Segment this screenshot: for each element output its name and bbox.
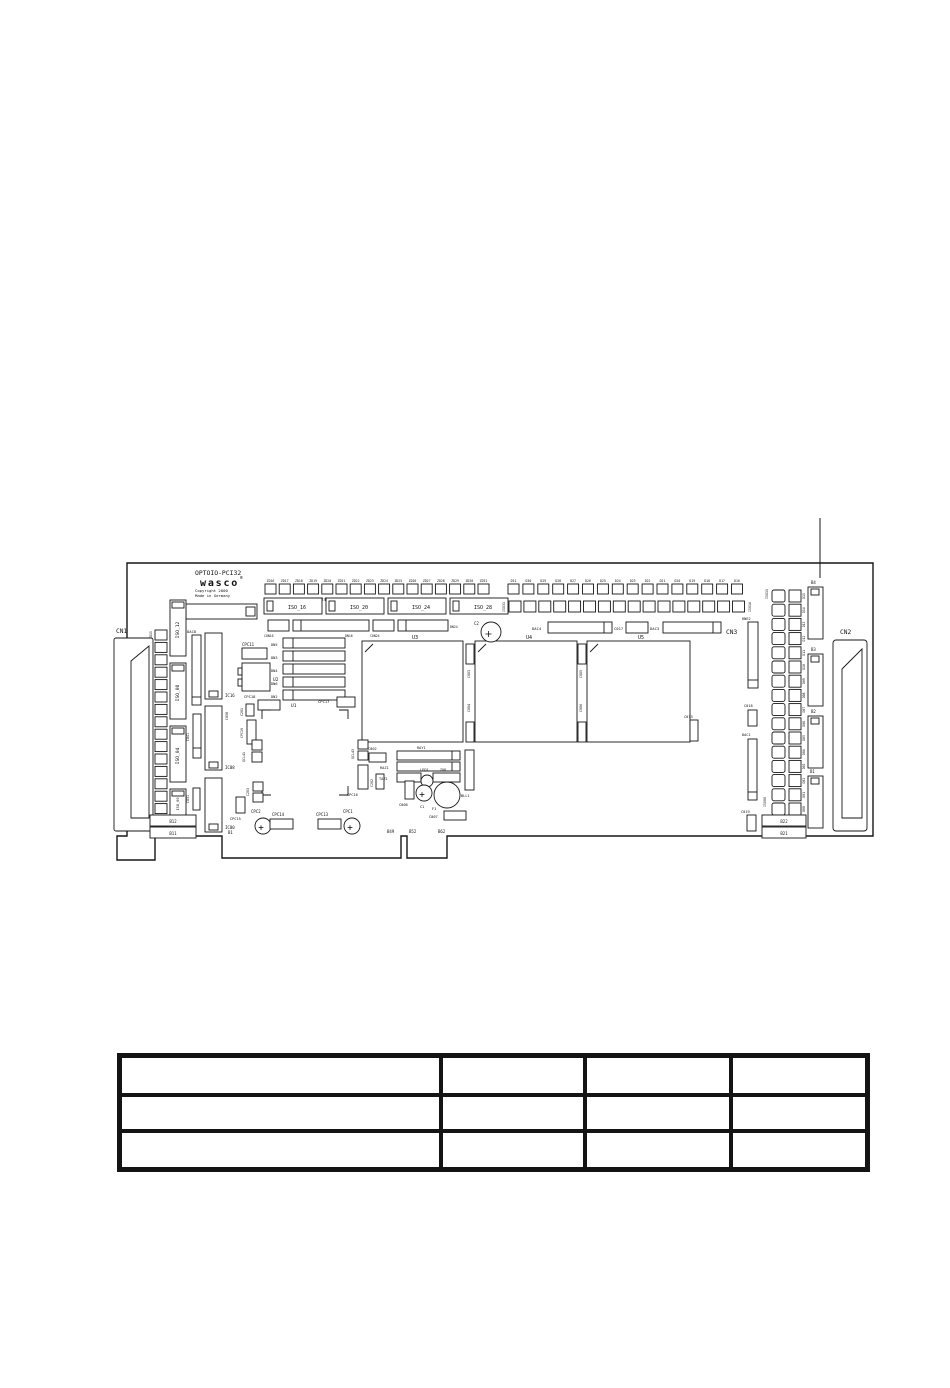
zd-top-row-label: ZD26 bbox=[409, 579, 417, 583]
c202-label: C202 bbox=[370, 779, 374, 787]
d-top-row-label: D30 bbox=[526, 579, 532, 583]
c002-body bbox=[369, 753, 386, 762]
d-right-column-label: D11 bbox=[802, 650, 806, 656]
ic08-label: IC08 bbox=[225, 765, 235, 770]
zd-left-column-item bbox=[155, 630, 167, 640]
led-right-column-item bbox=[772, 675, 785, 687]
d-right-column-label: D06 bbox=[802, 721, 806, 727]
c1-body bbox=[416, 785, 432, 801]
zd-top-row-label: ZD30 bbox=[465, 579, 473, 583]
dn24-label: DN24 bbox=[450, 625, 458, 629]
d-right-column-item bbox=[789, 775, 801, 787]
cpc11-body bbox=[242, 648, 267, 659]
d-right-column-label: D02 bbox=[802, 778, 806, 784]
qcl43-body1 bbox=[358, 740, 368, 749]
table-cell bbox=[585, 1095, 731, 1131]
d-right-column-label: D10 bbox=[802, 664, 806, 670]
dac8-label: DAC8 bbox=[187, 629, 197, 634]
table-row bbox=[120, 1095, 868, 1131]
d-right-column-item bbox=[789, 604, 801, 616]
cpc13-body bbox=[318, 819, 341, 829]
d-right-column-item bbox=[789, 633, 801, 645]
zd-top-row-label: ZD19 bbox=[309, 579, 317, 583]
d-top-row-label: D20 bbox=[675, 579, 681, 583]
zq8-label: ZQ8 bbox=[440, 768, 446, 772]
cpc19-label: CPC19 bbox=[240, 728, 244, 738]
zd-top-row-item bbox=[393, 584, 404, 594]
zd-left-column-item bbox=[155, 791, 167, 801]
c006-body bbox=[578, 722, 586, 742]
d-top-row-item bbox=[597, 584, 608, 594]
zd-left-column-item bbox=[155, 680, 167, 690]
c003-body bbox=[466, 644, 474, 664]
dn6-label: DN6 bbox=[271, 682, 278, 686]
cpc2-label: CPC2 bbox=[251, 809, 261, 814]
table-cell bbox=[441, 1131, 584, 1170]
led-right-column-item bbox=[772, 732, 785, 744]
d-top-row-label: D26 bbox=[585, 579, 591, 583]
zd-top-row-item bbox=[364, 584, 375, 594]
d-right-column-label: D08 bbox=[802, 692, 806, 698]
zd-top-row-item bbox=[407, 584, 418, 594]
dn3-body bbox=[283, 651, 345, 661]
table-cell bbox=[441, 1056, 584, 1095]
dn16-body bbox=[293, 620, 369, 631]
b2-notch bbox=[811, 718, 819, 724]
led-top-row-item bbox=[703, 601, 715, 612]
cpc1-body bbox=[344, 818, 360, 834]
qcl41-body1 bbox=[252, 740, 262, 750]
c203-label: C203 bbox=[246, 788, 250, 796]
c018-body bbox=[748, 710, 757, 726]
b49-label: B49 bbox=[387, 829, 395, 834]
b1-left-label: B1 bbox=[228, 830, 233, 835]
d-top-row-label: D28 bbox=[555, 579, 561, 583]
cpc15-label: CPC15 bbox=[230, 817, 241, 821]
dn3-label: DN3 bbox=[271, 656, 278, 660]
led-top-row-item bbox=[509, 601, 521, 612]
con16-label: CON16 bbox=[264, 634, 274, 638]
b2-label: B2 bbox=[811, 709, 816, 714]
zd-top-row-item bbox=[421, 584, 432, 594]
c031-label: C031 bbox=[186, 795, 190, 803]
d-right-column-item bbox=[789, 647, 801, 659]
zd-top-row-label: ZD28 bbox=[437, 579, 445, 583]
c005-label: C005 bbox=[579, 670, 583, 678]
cpc17-label: CPC17 bbox=[318, 699, 329, 704]
d-top-row-label: D17 bbox=[719, 579, 725, 583]
cpc16-label: CPC16 bbox=[347, 793, 358, 797]
led-top-row-item bbox=[539, 601, 551, 612]
zd-top-row-item bbox=[450, 584, 461, 594]
bll1-label: BLL1 bbox=[461, 794, 470, 798]
b62-label: B62 bbox=[438, 829, 446, 834]
d-top-row-item bbox=[612, 584, 623, 594]
d-right-column-label: D03 bbox=[802, 763, 806, 769]
f1-label: F1 bbox=[432, 807, 436, 811]
led-top-row-item bbox=[584, 601, 596, 612]
iso24-label: ISO_24 bbox=[412, 605, 430, 611]
table-cell bbox=[731, 1056, 868, 1095]
u2-body bbox=[242, 663, 270, 691]
iso28-pad bbox=[453, 601, 459, 611]
zd-top-row-label: ZD23 bbox=[366, 579, 374, 583]
d-right-column-label: D00 bbox=[802, 806, 806, 812]
d-right-column-label: D07 bbox=[802, 707, 806, 713]
led-top-row-item bbox=[718, 601, 730, 612]
qcl43-label: QCL43 bbox=[351, 749, 355, 759]
led-top-row-item bbox=[643, 601, 655, 612]
u4-label: U4 bbox=[526, 635, 532, 641]
ray1-body bbox=[397, 751, 460, 760]
b3-notch bbox=[811, 656, 819, 662]
cn3-label: CN3 bbox=[726, 629, 737, 636]
d-top-row-item bbox=[657, 584, 668, 594]
zd-left-column-item bbox=[155, 704, 167, 714]
c203-body1 bbox=[253, 782, 263, 791]
zd-top-row-label: ZD25 bbox=[394, 579, 402, 583]
c2-body bbox=[481, 622, 501, 642]
dn5-body bbox=[283, 638, 345, 648]
zd-top-row-label: ZD27 bbox=[423, 579, 431, 583]
table-cell bbox=[441, 1095, 584, 1131]
rne2-body bbox=[748, 622, 758, 688]
d-right-column-item bbox=[789, 718, 801, 730]
d-top-row-item bbox=[672, 584, 683, 594]
iso12-pad bbox=[172, 602, 184, 608]
b11-label: B11 bbox=[169, 831, 177, 836]
iso12-label: ISO_12 bbox=[175, 621, 181, 638]
document-page: ZD16ZD17ZD18ZD19ZD20ZD21ZD22ZD23ZD24ZD25… bbox=[0, 0, 950, 1388]
iso04-pad bbox=[172, 728, 184, 734]
d-top-row-item bbox=[523, 584, 534, 594]
dn5-label: DN5 bbox=[271, 643, 278, 647]
c041-body bbox=[193, 714, 201, 758]
led-right-column-item bbox=[772, 647, 785, 659]
zd-top-row-label: ZD22 bbox=[352, 579, 360, 583]
zd-top-row-item bbox=[464, 584, 475, 594]
u4-body bbox=[475, 641, 577, 742]
qcl43-body2 bbox=[358, 751, 368, 760]
c008-body bbox=[405, 781, 414, 799]
zd-top-row-label: ZD29 bbox=[451, 579, 459, 583]
taz1-label: TAZ1 bbox=[379, 777, 388, 781]
dac3-label: DAC3 bbox=[650, 626, 659, 631]
iso20-pad bbox=[329, 601, 335, 611]
u2-pin1 bbox=[238, 668, 242, 675]
cpc18-body bbox=[258, 700, 280, 710]
u3-body bbox=[362, 641, 463, 742]
cpc1-label: CPC1 bbox=[343, 809, 353, 814]
b1-notch bbox=[811, 778, 819, 784]
c2-label: C2 bbox=[474, 621, 479, 626]
d-right-column-label: D12 bbox=[802, 636, 806, 642]
led-right-column-item bbox=[772, 689, 785, 701]
board-title: OPTOIO-PCI32 bbox=[195, 569, 241, 577]
d-right-column-label: D09 bbox=[802, 678, 806, 684]
zd-top-row-label: ZD17 bbox=[281, 579, 289, 583]
dn4-body bbox=[283, 664, 345, 674]
pcb-layout-svg: ZD16ZD17ZD18ZD19ZD20ZD21ZD22ZD23ZD24ZD25… bbox=[0, 0, 950, 950]
ic16-label: IC16 bbox=[225, 693, 235, 698]
d-top-row-item bbox=[687, 584, 698, 594]
d-top-row-label: D22 bbox=[645, 579, 651, 583]
d-top-row-item bbox=[553, 584, 564, 594]
led-right-column-item bbox=[772, 590, 785, 602]
d-right-column-item bbox=[789, 590, 801, 602]
zd-top-row-item bbox=[336, 584, 347, 594]
raz1-label: RAZ1 bbox=[380, 766, 389, 770]
d-top-row-item bbox=[583, 584, 594, 594]
d-top-row-label: D29 bbox=[540, 579, 546, 583]
b21-label: B21 bbox=[780, 831, 788, 836]
zd-top-row-item bbox=[279, 584, 290, 594]
c008-label: C008 bbox=[399, 803, 408, 807]
c013-label: C013 bbox=[684, 715, 693, 719]
table-cell bbox=[120, 1095, 442, 1131]
zd-top-row-item bbox=[265, 584, 276, 594]
d-top-row-label: D25 bbox=[600, 579, 606, 583]
zd-top-row-item bbox=[308, 584, 319, 594]
dac1-label: DAC1 bbox=[742, 733, 751, 737]
zd-top-row-item bbox=[322, 584, 333, 594]
u1-corner-tl bbox=[262, 710, 271, 719]
d-top-row-item bbox=[717, 584, 728, 594]
zd-top-row-label: ZD21 bbox=[338, 579, 346, 583]
led-right-column-item bbox=[772, 789, 785, 801]
zd-left-column-item bbox=[155, 655, 167, 665]
d-right-column-label: D04 bbox=[802, 749, 806, 755]
b52-label: B52 bbox=[409, 829, 417, 834]
con24-body bbox=[373, 620, 394, 631]
d-right-column-item bbox=[789, 789, 801, 801]
d-top-row-item bbox=[642, 584, 653, 594]
c201-body bbox=[246, 704, 254, 716]
led-right-column-item bbox=[772, 704, 785, 716]
led-right-column-item bbox=[772, 618, 785, 630]
zd-top-row-item bbox=[379, 584, 390, 594]
led-top-row-item bbox=[688, 601, 700, 612]
ray1-label: RAY1 bbox=[417, 746, 426, 750]
led-col-bottom-label: ISO00 bbox=[763, 797, 767, 807]
c004-label: C004 bbox=[467, 704, 471, 712]
u3-label: U3 bbox=[412, 635, 418, 641]
c019-body bbox=[747, 815, 756, 831]
d-top-row-item bbox=[568, 584, 579, 594]
zd-left-column-item bbox=[155, 779, 167, 789]
zd-left-column-item bbox=[155, 804, 167, 814]
con24-label: CON24 bbox=[370, 634, 380, 638]
d-top-row-item bbox=[627, 584, 638, 594]
iso24-pad bbox=[391, 601, 397, 611]
ic16-notch bbox=[209, 691, 218, 697]
table-cell bbox=[731, 1131, 868, 1170]
led-right-column-item bbox=[772, 775, 785, 787]
u5-body bbox=[587, 641, 690, 742]
led-top-row-item bbox=[569, 601, 581, 612]
c201-label: C201 bbox=[240, 708, 244, 716]
zd-top-row-label: ZD24 bbox=[380, 579, 388, 583]
u2-pin2 bbox=[238, 679, 242, 686]
cn2-label: CN2 bbox=[840, 629, 851, 636]
c031-body bbox=[193, 788, 200, 810]
iso00-pad bbox=[172, 791, 184, 796]
iso28-label: ISO_28 bbox=[474, 605, 492, 611]
d-right-column-item bbox=[789, 618, 801, 630]
iso16-pad bbox=[267, 601, 273, 611]
led-row-right-label: ISO16 bbox=[748, 602, 752, 612]
cpc16-body bbox=[358, 765, 368, 789]
cpc11-label: CPC11 bbox=[242, 642, 255, 647]
b3-label: B3 bbox=[811, 647, 816, 652]
zd-left-column-item bbox=[155, 754, 167, 764]
led-right-column-item bbox=[772, 661, 785, 673]
taz1-bar2 bbox=[433, 773, 460, 782]
c050-label: C050 bbox=[225, 712, 229, 720]
ic16-body bbox=[205, 633, 222, 699]
cpc13-label: CPC13 bbox=[316, 812, 329, 817]
d-right-column-label: D13 bbox=[802, 621, 806, 627]
dn2-body bbox=[283, 690, 345, 700]
d-right-column-label: D05 bbox=[802, 735, 806, 741]
cpc14-body bbox=[270, 819, 293, 829]
c017-body bbox=[626, 622, 648, 633]
table-cell bbox=[585, 1056, 731, 1095]
b1-right-label: B1 bbox=[810, 769, 815, 774]
u5-label: U5 bbox=[638, 635, 644, 641]
led-top-row-item bbox=[628, 601, 640, 612]
brand-reg-mark: ® bbox=[240, 575, 243, 581]
led-right-column-item bbox=[772, 760, 785, 772]
d-top-row-label: D31 bbox=[511, 579, 517, 583]
d-right-column-item bbox=[789, 675, 801, 687]
d-top-row-label: D24 bbox=[615, 579, 621, 583]
iso04-label: ISO_04 bbox=[175, 747, 181, 764]
dn24-body bbox=[398, 620, 448, 631]
c019-label: C019 bbox=[741, 810, 750, 814]
table-cell bbox=[585, 1131, 731, 1170]
c002-label: C002 bbox=[368, 747, 377, 751]
zd-left-column-item bbox=[155, 729, 167, 739]
blank-table bbox=[117, 1053, 870, 1172]
ic24-notch bbox=[246, 607, 255, 616]
led-row-left-label: ISO31 bbox=[502, 602, 506, 612]
d-right-column-item bbox=[789, 689, 801, 701]
led-right-column-item bbox=[772, 803, 785, 815]
c1-label: C1 bbox=[420, 805, 424, 809]
ic00-notch bbox=[209, 824, 218, 830]
origin-line: Made in Germany bbox=[195, 593, 231, 598]
c003-label: C003 bbox=[467, 670, 471, 678]
led-right-column-item bbox=[772, 604, 785, 616]
zd-left-column-item bbox=[155, 766, 167, 776]
b12-label: B12 bbox=[169, 819, 177, 824]
cpc17-body bbox=[337, 697, 355, 707]
iso00-label: ISO_00 bbox=[176, 798, 180, 811]
led-top-row-item bbox=[673, 601, 685, 612]
dac8-body bbox=[192, 635, 201, 705]
d-top-row-label: D19 bbox=[689, 579, 695, 583]
c007-body bbox=[444, 811, 466, 820]
iso16-label: ISO_16 bbox=[288, 605, 306, 611]
led-top-row-item bbox=[733, 601, 745, 612]
bll1-body bbox=[465, 750, 474, 790]
d-right-column-item bbox=[789, 661, 801, 673]
dac1-body bbox=[748, 739, 757, 800]
cpc14-label: CPC14 bbox=[272, 812, 285, 817]
c006-label: C006 bbox=[579, 704, 583, 712]
d-top-row-item bbox=[508, 584, 519, 594]
d-top-row-item bbox=[732, 584, 743, 594]
qcl41-label: QCL41 bbox=[242, 752, 246, 762]
d-right-column-label: D15 bbox=[802, 593, 806, 599]
ic08-body bbox=[205, 706, 222, 770]
table-cell bbox=[120, 1056, 442, 1095]
d-top-row-label: D21 bbox=[660, 579, 666, 583]
zd-top-row-item bbox=[435, 584, 446, 594]
iso20-label: ISO_20 bbox=[350, 605, 368, 611]
led1-label: LED1 bbox=[420, 768, 429, 772]
dac4-body bbox=[548, 622, 612, 633]
led-right-column-item bbox=[772, 718, 785, 730]
con16-body bbox=[268, 620, 289, 631]
dn6-body bbox=[283, 677, 345, 687]
dn4-label: DN4 bbox=[271, 669, 278, 673]
zd-top-row-label: ZD31 bbox=[480, 579, 488, 583]
qcl41-body2 bbox=[252, 752, 262, 762]
u1-corner-tr bbox=[339, 710, 348, 719]
d-right-column-label: D01 bbox=[802, 792, 806, 798]
d-top-row-item bbox=[538, 584, 549, 594]
zd-left-column-item bbox=[155, 692, 167, 702]
table-row bbox=[120, 1131, 868, 1170]
zd-top-row-label: ZD18 bbox=[295, 579, 303, 583]
table-cell bbox=[731, 1095, 868, 1131]
d-top-row-label: D16 bbox=[734, 579, 740, 583]
rne2-label: RNE2 bbox=[742, 617, 751, 621]
zd-top-row-item bbox=[293, 584, 304, 594]
led-top-row-item bbox=[598, 601, 610, 612]
dac3-body bbox=[663, 622, 721, 633]
b4-notch bbox=[811, 589, 819, 595]
c004-body bbox=[466, 722, 474, 742]
cn1-body bbox=[114, 638, 153, 831]
d-right-column-item bbox=[789, 746, 801, 758]
cn1-label: CN1 bbox=[116, 628, 127, 635]
led-top-row-item bbox=[524, 601, 536, 612]
dac4-label: DAC4 bbox=[532, 626, 542, 631]
c007-label: C007 bbox=[429, 815, 438, 819]
zd-top-row-item bbox=[350, 584, 361, 594]
led-top-row-item bbox=[613, 601, 625, 612]
d-right-column-item bbox=[789, 732, 801, 744]
ic08-notch bbox=[209, 762, 218, 768]
led-right-column-item bbox=[772, 633, 785, 645]
zd-top-row-item bbox=[478, 584, 489, 594]
led-col-top-label: ISO15 bbox=[765, 589, 769, 599]
d-right-column-label: D14 bbox=[802, 607, 806, 613]
b22-label: B22 bbox=[780, 819, 788, 824]
c041-label: C041 bbox=[186, 733, 190, 741]
zd-left-column-item bbox=[155, 642, 167, 652]
zd-top-row-label: ZD16 bbox=[267, 579, 275, 583]
table-cell bbox=[120, 1131, 442, 1170]
cpc18-label: CPC18 bbox=[244, 694, 256, 699]
iso08-label: ISO_08 bbox=[175, 684, 181, 701]
led-right-column-item bbox=[772, 746, 785, 758]
table-row bbox=[120, 1056, 868, 1095]
d-top-row-item bbox=[702, 584, 713, 594]
